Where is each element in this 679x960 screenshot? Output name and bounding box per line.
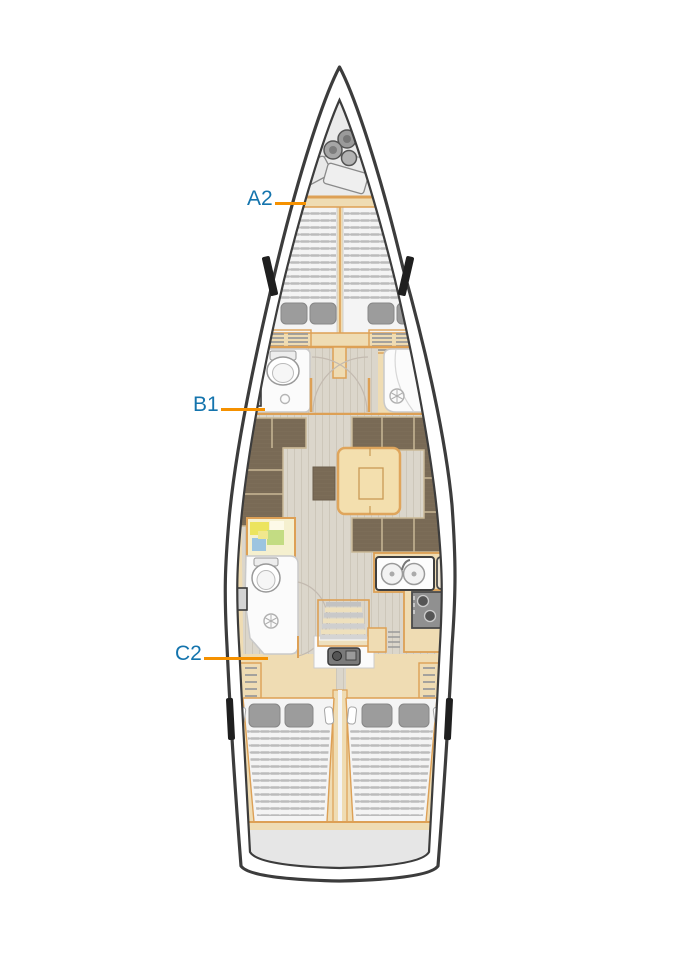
yacht-deck-plan: A2 B1 C2: [0, 0, 679, 960]
saloon-table: [338, 448, 400, 514]
cabin-label-c2-text: C2: [175, 644, 202, 664]
aft-cabin-divider: [333, 690, 347, 822]
cabin-label-c2: C2: [175, 644, 268, 664]
reading-light-icon: [426, 305, 440, 325]
saloon-stool: [313, 467, 335, 500]
galley-sink-icon: [376, 557, 434, 590]
bow-anchor-locker: [218, 90, 462, 197]
cabin-label-c2-line: [204, 657, 268, 660]
reading-light-icon: [324, 707, 334, 725]
cabin-label-a2-line: [275, 202, 306, 205]
reading-light-icon: [347, 707, 357, 725]
stove-icon: [412, 592, 442, 628]
cabin-label-a2: A2: [247, 189, 306, 209]
engine-icon: [328, 648, 360, 665]
cabin-label-b1: B1: [193, 395, 265, 415]
cabin-label-b1-line: [221, 408, 265, 411]
cabin-label-b1-text: B1: [193, 395, 219, 415]
cabin-label-a2-text: A2: [247, 189, 273, 209]
yacht-layout-svg: [0, 0, 679, 960]
